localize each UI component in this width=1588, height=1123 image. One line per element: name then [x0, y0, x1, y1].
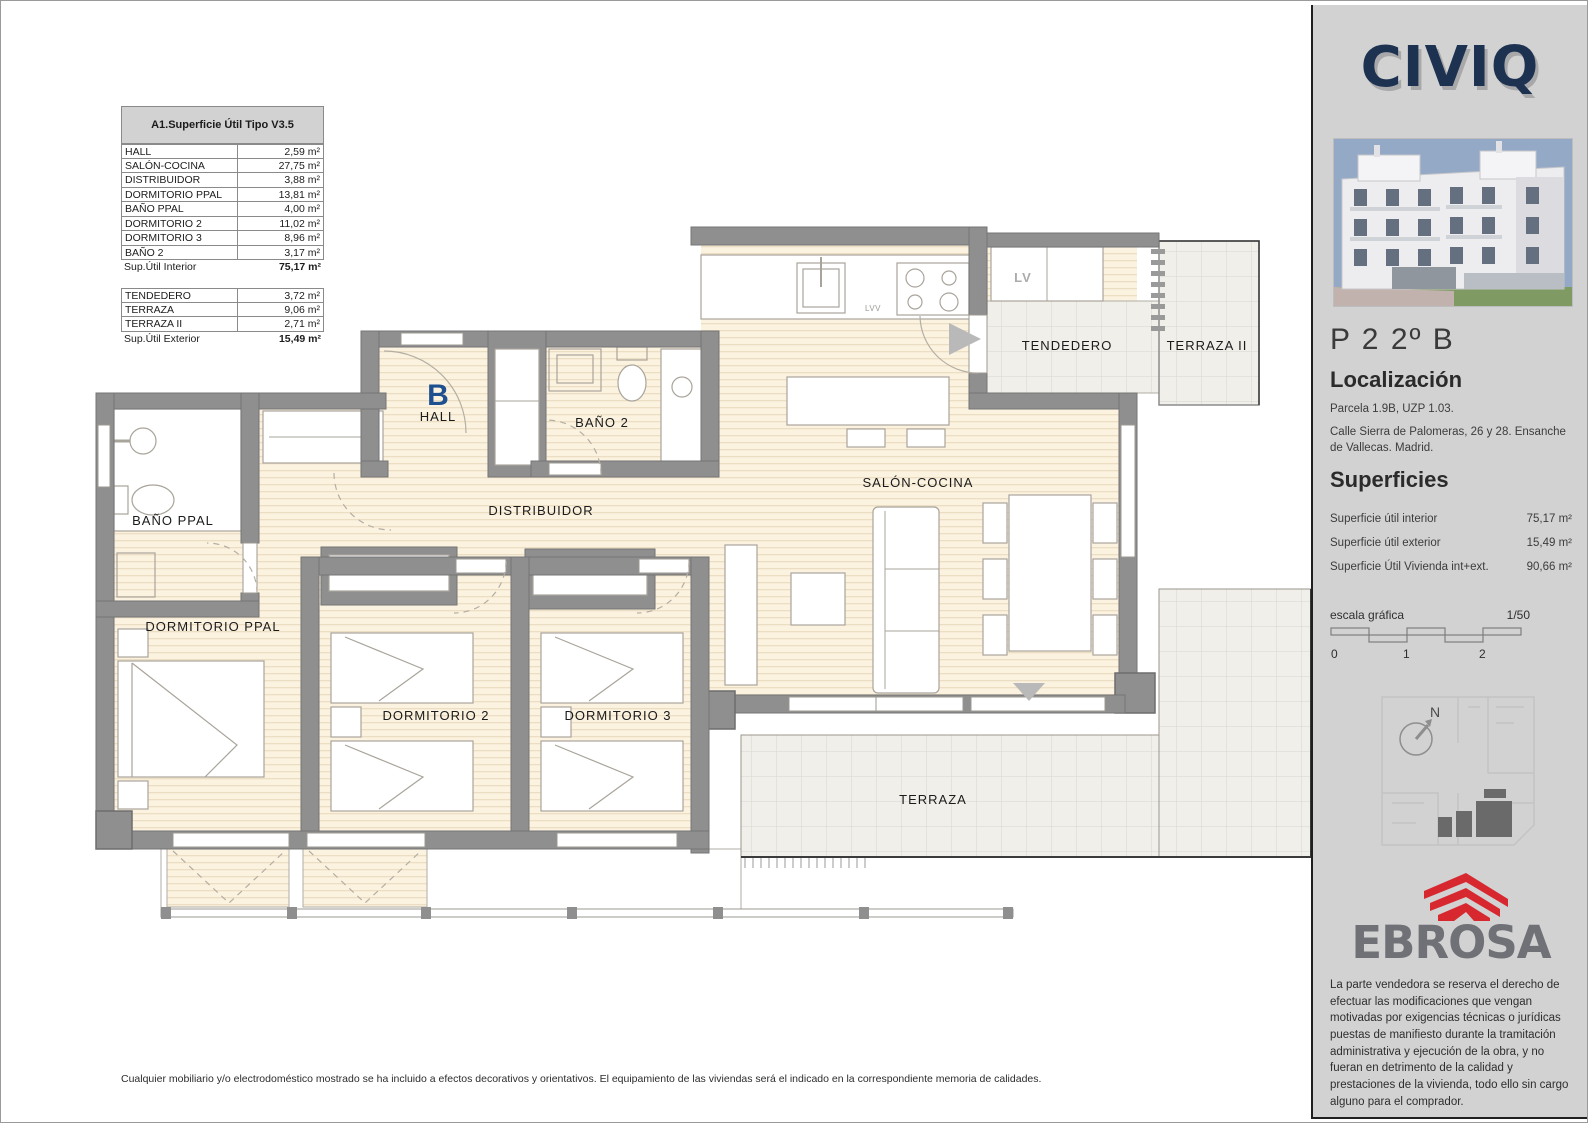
key-plan: N: [1368, 683, 1548, 863]
exterior-total-row: Sup.Útil Exterior15,49 m²: [121, 332, 324, 347]
surfaces-heading: Superficies: [1330, 467, 1449, 493]
room-label-bano2: BAÑO 2: [575, 415, 629, 430]
room-label-dorm2: DORMITORIO 2: [382, 708, 489, 723]
room-label-terraza2: TERRAZA II: [1167, 338, 1248, 353]
room-label-dorm-ppal: DORMITORIO PPAL: [145, 619, 280, 634]
unit-letter-label: B: [427, 379, 449, 412]
table-row: DISTRIBUIDOR3,88 m²: [121, 173, 324, 188]
location-line: Calle Sierra de Palomeras, 26 y 28. Ensa…: [1330, 425, 1570, 456]
room-label-hall: HALL: [420, 409, 457, 424]
scale-label: escala gráfica: [1330, 608, 1404, 622]
table-row: DORMITORIO 38,96 m²: [121, 231, 324, 246]
scale-bar: 0 1 2: [1330, 622, 1530, 664]
location-line: Parcela 1.9B, UZP 1.03.: [1330, 403, 1454, 415]
area-table-title: A1.Superficie Útil Tipo V3.5: [121, 106, 324, 144]
ebrosa-wordmark: EBROSA: [1313, 920, 1588, 965]
area-table: A1.Superficie Útil Tipo V3.5 HALL2,59 m²…: [121, 106, 324, 347]
compass-n-label: N: [1430, 704, 1440, 720]
room-label-dorm3: DORMITORIO 3: [564, 708, 671, 723]
graphic-scale: escala gráfica 1/50 0 1 2: [1330, 608, 1530, 669]
ebrosa-logo: EBROSA: [1313, 873, 1588, 965]
room-label-distribuidor: DISTRIBUIDOR: [488, 503, 593, 518]
room-label-terraza: TERRAZA: [899, 792, 967, 807]
svg-text:1: 1: [1403, 647, 1410, 661]
interior-total-row: Sup.Útil Interior75,17 m²: [121, 260, 324, 275]
room-label-tendedero: TENDEDERO: [1022, 338, 1113, 353]
table-row: DORMITORIO PPAL13,81 m²: [121, 188, 324, 203]
table-row: DORMITORIO 211,02 m²: [121, 217, 324, 232]
ebrosa-chevrons-icon: [1414, 873, 1524, 921]
surface-row: Superficie útil exterior15,49 m²: [1330, 537, 1572, 549]
room-label-bano-ppal: BAÑO PPAL: [132, 513, 214, 528]
appliance-label-lv: LV: [1014, 270, 1032, 285]
table-row: TERRAZA9,06 m²: [121, 303, 324, 318]
bottom-disclaimer: Cualquier mobiliario y/o electrodoméstic…: [121, 1073, 1221, 1085]
room-label-salon: SALÓN-COCINA: [863, 475, 974, 490]
table-row: TENDEDERO3,72 m²: [121, 288, 324, 303]
building-photo: [1333, 138, 1573, 307]
table-row: BAÑO 23,17 m²: [121, 246, 324, 261]
surface-row: Superficie Útil Vivienda int+ext.90,66 m…: [1330, 561, 1572, 573]
appliance-label-lvv: LVV: [865, 304, 881, 313]
svg-text:2: 2: [1479, 647, 1486, 661]
title-block-sidebar: CIVIQ P 2 2º B Localizac: [1311, 5, 1587, 1119]
scale-ratio: 1/50: [1507, 608, 1530, 622]
surface-row: Superficie útil interior75,17 m²: [1330, 513, 1572, 525]
table-row: HALL2,59 m²: [121, 144, 324, 159]
plan-sheet-page: B HALL BAÑO 2 DISTRIBUIDOR BAÑO PPAL DOR…: [0, 0, 1588, 1123]
table-row: SALÓN-COCINA27,75 m²: [121, 159, 324, 174]
legal-disclaimer: La parte vendedora se reserva el derecho…: [1330, 977, 1572, 1110]
table-row: BAÑO PPAL4,00 m²: [121, 202, 324, 217]
svg-text:0: 0: [1331, 647, 1338, 661]
unit-title: P 2 2º B: [1330, 323, 1455, 357]
location-heading: Localización: [1330, 367, 1462, 393]
table-row: TERRAZA II2,71 m²: [121, 317, 324, 332]
civiq-logo: CIVIQ: [1331, 35, 1569, 100]
